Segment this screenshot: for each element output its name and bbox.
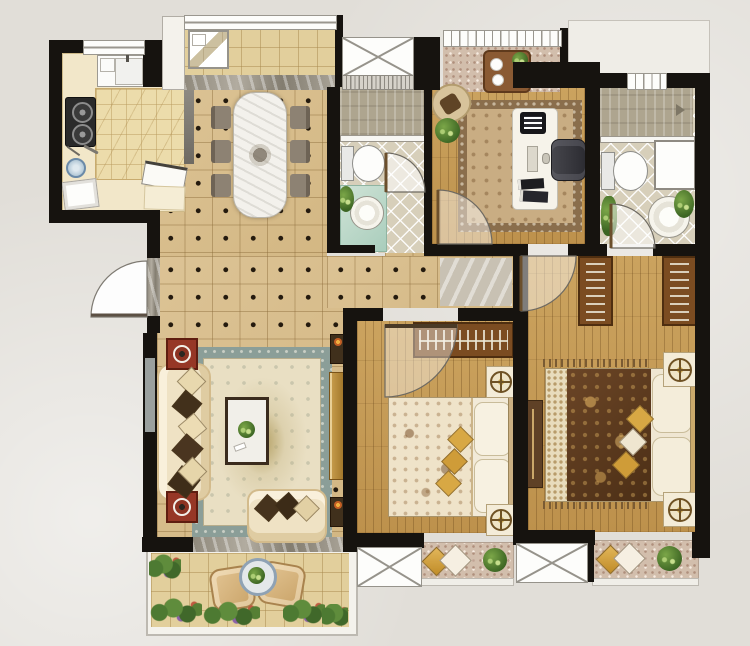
wall	[565, 73, 627, 88]
wall	[343, 308, 357, 552]
washbasin-main	[350, 196, 384, 230]
wall	[424, 87, 432, 244]
hall-marble-threshold	[440, 258, 512, 306]
bed-master	[545, 368, 697, 502]
wall	[412, 37, 440, 90]
burner-1	[72, 102, 93, 123]
dining-chair	[211, 174, 231, 197]
desk-books	[518, 178, 545, 190]
bay-second-outline	[420, 578, 514, 586]
wall	[357, 308, 383, 321]
duct-shaft	[162, 16, 185, 90]
flower-bed	[150, 596, 202, 626]
ensuite-window	[627, 73, 667, 90]
wall	[147, 223, 160, 258]
dining-chair	[290, 174, 310, 197]
sink-bowl-main	[115, 58, 143, 85]
bed-rug-fringe-top	[543, 359, 649, 367]
wall	[424, 244, 518, 256]
south-window-left	[357, 547, 422, 587]
nightstand	[663, 492, 696, 527]
monitor-screen-lines	[524, 116, 542, 129]
wardrobe-master-right	[662, 256, 697, 326]
nightstand	[486, 366, 515, 398]
wall	[692, 532, 710, 558]
flower-bed	[149, 552, 181, 582]
dining-chair	[211, 140, 231, 163]
desk-mouse	[542, 153, 550, 164]
nightstand-lamp	[490, 371, 512, 393]
coffee-table-plant	[238, 421, 255, 438]
wall	[343, 533, 424, 548]
balcony-top-window	[184, 15, 337, 30]
coffee-table	[225, 397, 269, 465]
kitchen-pot	[66, 158, 86, 178]
wall	[653, 244, 695, 256]
burner-2	[72, 124, 93, 145]
bay-second-plant	[483, 548, 507, 572]
coffee-table-remote	[233, 442, 246, 452]
wall	[142, 537, 193, 552]
washer-panel	[192, 34, 206, 46]
balcony-table	[239, 558, 277, 596]
washing-machine	[188, 30, 229, 69]
toilet-main-bowl	[352, 145, 385, 182]
dining-chair	[211, 106, 231, 129]
shower-glass-main	[340, 135, 426, 142]
kitchen-board	[144, 185, 186, 210]
side-table-ring	[173, 498, 191, 516]
vent-shaft-window	[342, 75, 414, 90]
nightstand	[663, 352, 696, 387]
kitchen-sink	[97, 55, 145, 87]
wardrobe-second	[413, 322, 514, 358]
dresser-handle	[532, 409, 534, 479]
flower-bed	[322, 604, 348, 626]
bed-master-pillow	[652, 437, 692, 496]
rocking-chair-seat	[438, 92, 462, 116]
wardrobe-hangers	[670, 261, 690, 322]
entrance-door-swing	[91, 261, 147, 317]
balcony-table-plant	[248, 567, 265, 584]
nightstand-lamp	[668, 358, 692, 382]
gas-stove	[65, 97, 96, 147]
bay-master-plant	[657, 546, 682, 571]
vent-shaft	[342, 37, 414, 77]
wall	[143, 40, 162, 87]
shower-drain-ensuite	[676, 104, 685, 116]
flower-bed	[283, 598, 325, 626]
toilet-ensuite-bowl	[613, 151, 648, 191]
bed-second-pillow	[474, 402, 511, 456]
office-chair	[551, 139, 586, 181]
nightstand-lamp	[490, 509, 512, 531]
wall	[695, 73, 710, 545]
study-plant	[435, 118, 460, 143]
desk-books-2	[520, 190, 549, 202]
wall	[568, 244, 607, 256]
wardrobe-hangers	[419, 330, 508, 351]
wardrobe-hangers	[586, 261, 606, 322]
dining-chair	[290, 140, 310, 163]
wall	[49, 210, 160, 223]
bathroom-main-plant	[338, 186, 354, 212]
sink-bowl-small	[100, 58, 115, 72]
shower-area-main	[340, 87, 424, 135]
kitchen-tray-left	[61, 178, 99, 211]
ensuite-plant	[674, 190, 694, 218]
bed-rug-fringe-bottom	[543, 501, 649, 509]
speaker-cone	[334, 338, 342, 346]
flower-bed	[202, 601, 260, 627]
south-window-right	[516, 543, 588, 583]
side-table-ring	[173, 345, 191, 363]
kitchen-window	[83, 40, 145, 55]
wall	[327, 245, 375, 253]
wall	[458, 308, 513, 321]
wall	[147, 316, 160, 333]
living-left-window	[145, 358, 155, 432]
dining-table	[233, 92, 287, 218]
desk-monitor	[520, 112, 546, 134]
balcony-threshold	[184, 75, 335, 90]
study-bay-window	[443, 30, 562, 47]
wall	[49, 40, 62, 223]
wall	[327, 87, 340, 253]
wall	[513, 244, 528, 545]
bay-plate-2	[492, 74, 504, 86]
speaker-cone	[334, 501, 342, 509]
nightstand	[486, 504, 515, 536]
dining-chair	[290, 106, 310, 129]
bay-plate-1	[490, 58, 503, 71]
ensuite-cabinet	[654, 140, 696, 190]
floor-plan	[0, 0, 750, 646]
bed-second	[388, 397, 515, 517]
nightstand-lamp	[668, 498, 692, 522]
side-table-top	[166, 338, 198, 370]
bed-master-runner	[546, 369, 569, 501]
ensuite-plant-2	[601, 196, 617, 236]
wall	[585, 62, 600, 244]
bay-master-outline	[592, 578, 699, 586]
desk-keyboard	[527, 146, 538, 172]
wardrobe-master-left	[578, 256, 613, 326]
entrance-threshold	[147, 258, 160, 316]
kitchen-sliding-door	[184, 90, 194, 164]
